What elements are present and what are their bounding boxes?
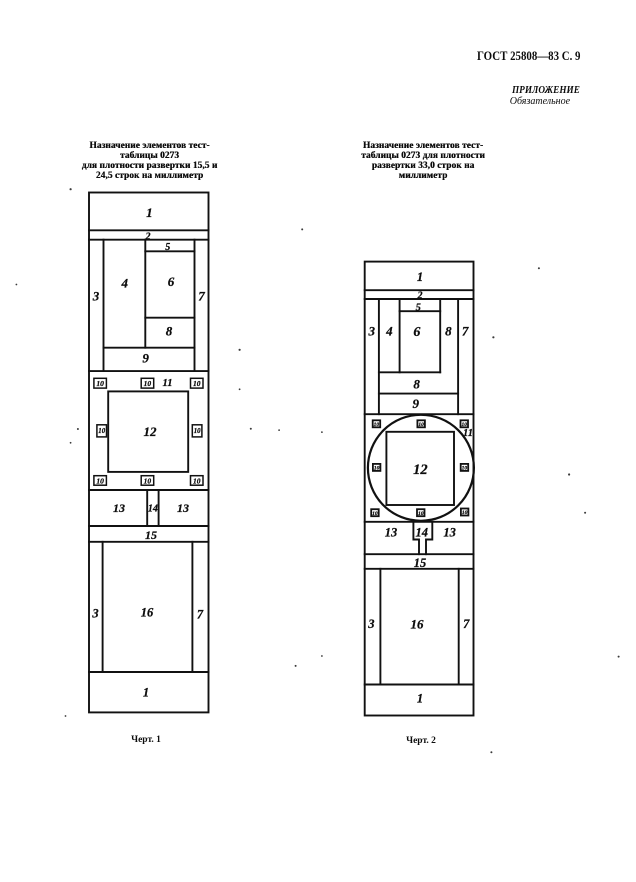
svg-text:10: 10 (462, 466, 468, 472)
svg-text:4: 4 (385, 324, 393, 339)
svg-text:2: 2 (417, 291, 423, 302)
svg-text:7: 7 (463, 617, 470, 631)
svg-text:3: 3 (91, 607, 98, 621)
svg-text:8: 8 (445, 324, 452, 339)
svg-text:11: 11 (463, 428, 473, 439)
svg-text:14: 14 (148, 504, 158, 515)
svg-text:13: 13 (443, 526, 456, 540)
svg-text:12: 12 (413, 462, 428, 478)
svg-text:1: 1 (417, 270, 423, 284)
svg-text:11: 11 (163, 378, 173, 389)
svg-text:7: 7 (198, 289, 205, 304)
svg-text:4: 4 (120, 276, 128, 291)
svg-text:6: 6 (413, 325, 420, 340)
svg-text:10: 10 (96, 477, 104, 486)
svg-text:8: 8 (166, 324, 173, 339)
svg-text:10: 10 (144, 477, 152, 486)
svg-text:7: 7 (197, 608, 204, 622)
svg-text:16: 16 (141, 606, 154, 620)
svg-text:10: 10 (98, 428, 105, 435)
svg-text:2: 2 (145, 232, 151, 243)
svg-text:8: 8 (413, 377, 420, 392)
svg-text:10: 10 (193, 379, 201, 388)
svg-text:3: 3 (367, 617, 374, 631)
svg-text:13: 13 (385, 526, 398, 540)
svg-text:3: 3 (92, 289, 100, 304)
svg-text:16: 16 (411, 617, 425, 632)
svg-text:12: 12 (144, 424, 158, 439)
svg-text:10: 10 (418, 422, 424, 428)
svg-text:9: 9 (412, 396, 419, 411)
svg-text:3: 3 (367, 324, 375, 339)
svg-text:15: 15 (414, 556, 427, 570)
svg-text:5: 5 (165, 242, 170, 253)
svg-text:10: 10 (372, 511, 378, 517)
svg-text:10: 10 (96, 379, 104, 388)
svg-text:10: 10 (418, 511, 424, 517)
svg-text:10: 10 (194, 428, 201, 435)
svg-text:13: 13 (177, 501, 189, 515)
svg-text:14: 14 (415, 526, 428, 540)
svg-text:1: 1 (417, 692, 423, 706)
svg-text:10: 10 (374, 422, 380, 428)
svg-text:10: 10 (374, 466, 380, 472)
svg-text:13: 13 (113, 501, 125, 515)
svg-text:10: 10 (144, 379, 152, 388)
svg-text:15: 15 (145, 528, 157, 542)
svg-text:1: 1 (146, 205, 153, 220)
svg-text:10: 10 (193, 477, 201, 486)
svg-text:7: 7 (462, 324, 469, 339)
svg-text:5: 5 (416, 303, 421, 314)
svg-text:9: 9 (142, 351, 149, 366)
svg-text:1: 1 (143, 686, 149, 700)
svg-text:10: 10 (462, 510, 468, 516)
svg-text:6: 6 (168, 274, 175, 289)
